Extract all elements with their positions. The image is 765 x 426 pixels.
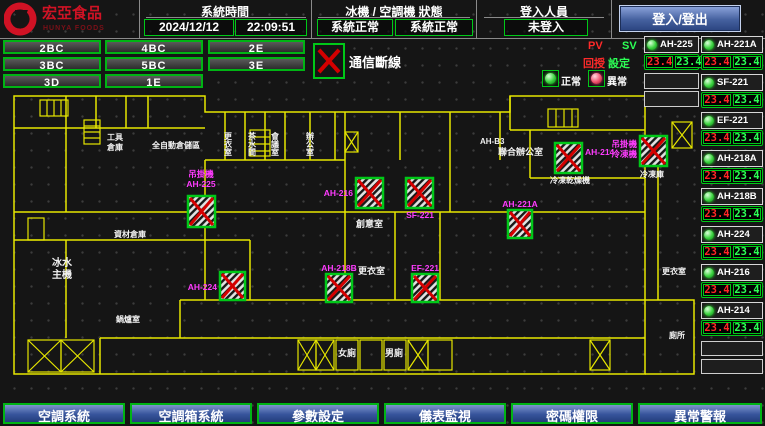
svg-text:女廁: 女廁	[338, 347, 356, 358]
device-ah-218b[interactable]: AH-218B	[321, 263, 356, 302]
unit-tile-ah-216[interactable]: AH-216	[701, 264, 763, 281]
svg-text:冷凍庫: 冷凍庫	[640, 169, 664, 179]
logo-subtitle: HUNYA FOODS	[43, 25, 105, 32]
device-ah-224[interactable]: AH-224	[188, 272, 245, 300]
svg-text:冷凍乾燥機: 冷凍乾燥機	[550, 175, 590, 185]
pv-value: 23.4	[646, 56, 673, 68]
logo: 宏亞食品 HUNYA FOODS	[4, 2, 138, 37]
comm-loss-label: 通信斷線	[349, 52, 401, 71]
nav-button-ahu-system[interactable]: 空調箱系統	[130, 403, 252, 424]
logo-title: 宏亞食品	[42, 4, 102, 22]
unit-status-led	[704, 154, 714, 164]
pv-value: 23.4	[703, 170, 731, 182]
unit-status-led	[704, 116, 714, 126]
svg-text:AH-221A: AH-221A	[502, 199, 537, 209]
system-clock-value: 22:09:51	[235, 19, 307, 36]
svg-text:吊掛機: 吊掛機	[611, 139, 637, 149]
unit-status-led	[704, 192, 714, 202]
unit-values-ef-221: 23.4 23.4	[701, 130, 763, 146]
svg-text:AH-B3: AH-B3	[480, 137, 505, 146]
device-ef-221[interactable]: EF-221	[411, 263, 439, 302]
unit-name: AH-224	[717, 229, 750, 240]
chiller-status-box: 系統正常	[317, 19, 393, 36]
floor-button-4bc[interactable]: 4BC	[105, 40, 203, 54]
unit-status-led	[647, 40, 657, 50]
pv-value: 23.4	[703, 94, 731, 106]
floor-button-2e[interactable]: 2E	[208, 40, 305, 54]
unit-name: AH-225	[660, 39, 693, 50]
pv-value: 23.4	[703, 284, 731, 296]
device-ah-225[interactable]: 吊掛機 AH-225	[186, 169, 216, 227]
system-date-value: 2024/12/12	[144, 19, 234, 36]
unit-tile-ah-224[interactable]: AH-224	[701, 226, 763, 243]
unit-values-ah-218b: 23.4 23.4	[701, 206, 763, 222]
empty-slot	[644, 73, 699, 89]
unit-values-ah-216: 23.4 23.4	[701, 282, 763, 298]
sv-value: 23.4	[733, 56, 761, 68]
nav-button-parameters[interactable]: 參數設定	[257, 403, 379, 424]
abnormal-led-icon	[588, 70, 605, 87]
login-logout-button[interactable]: 登入/登出	[619, 5, 741, 32]
vent-x-boxes	[28, 122, 692, 372]
unit-status-led	[704, 306, 714, 316]
header-rule	[146, 17, 306, 18]
svg-text:茶水間: 茶水間	[247, 131, 257, 157]
unit-values-ah-221a: 23.4 23.4	[701, 54, 763, 70]
unit-tile-ah-218b[interactable]: AH-218B	[701, 188, 763, 205]
svg-text:SF-221: SF-221	[406, 210, 434, 220]
unit-tile-ef-221[interactable]: EF-221	[701, 112, 763, 129]
room-labels: AH-B3 聯合辦公室 創意室 更衣室 女廁 男廁 冰水 主機 資材倉庫 鍋爐室…	[52, 131, 686, 358]
unit-tile-ah-225[interactable]: AH-225	[644, 36, 699, 53]
floor-button-2bc[interactable]: 2BC	[3, 40, 101, 54]
unit-status-led	[704, 268, 714, 278]
svg-text:辦公室: 辦公室	[306, 131, 315, 157]
nav-button-ac-system[interactable]: 空調系統	[3, 403, 125, 424]
sv-value: 23.4	[733, 246, 761, 258]
svg-text:AH-218B: AH-218B	[321, 263, 356, 273]
unit-status-led	[704, 40, 714, 50]
pv-label: PV	[588, 40, 603, 52]
pv-value: 23.4	[703, 246, 731, 258]
svg-text:更衣室: 更衣室	[662, 266, 686, 276]
hmi-screen: 宏亞食品 HUNYA FOODS 系統時間 2024/12/12 22:09:5…	[0, 0, 765, 426]
sv-value: 23.4	[733, 322, 761, 334]
sv-value: 23.4	[675, 56, 702, 68]
svg-text:廁所: 廁所	[669, 330, 685, 340]
floor-button-1e[interactable]: 1E	[105, 74, 203, 88]
floor-button-3d[interactable]: 3D	[3, 74, 101, 88]
unit-values-sf-221: 23.4 23.4	[701, 92, 763, 108]
unit-tile-ah-221a[interactable]: AH-221A	[701, 36, 763, 53]
unit-values-ah-224: 23.4 23.4	[701, 244, 763, 260]
setpoint-label: 設定	[608, 55, 630, 71]
svg-text:EF-221: EF-221	[411, 263, 439, 273]
pv-value: 23.4	[703, 132, 731, 144]
pv-value: 23.4	[703, 56, 731, 68]
svg-text:主機: 主機	[52, 268, 72, 281]
svg-text:男廁: 男廁	[385, 347, 403, 358]
empty-slot	[701, 359, 763, 374]
svg-text:冰水: 冰水	[52, 256, 73, 269]
floor-button-5bc[interactable]: 5BC	[105, 57, 203, 71]
unit-name: AH-218B	[717, 191, 757, 202]
sv-label: SV	[622, 40, 637, 52]
device-hoist[interactable]: 吊掛機 冷凍機 冷凍庫	[611, 136, 667, 179]
svg-text:更衣室: 更衣室	[358, 265, 385, 276]
login-status-box: 未登入	[504, 19, 588, 36]
normal-led-icon	[542, 70, 559, 87]
header-rule	[318, 17, 470, 18]
unit-name: AH-221A	[717, 39, 757, 50]
svg-text:鍋爐室: 鍋爐室	[116, 314, 140, 324]
svg-text:AH-225: AH-225	[186, 179, 216, 189]
unit-status-led	[704, 78, 714, 88]
unit-name: EF-221	[717, 115, 748, 126]
normal-label: 正常	[561, 73, 581, 88]
svg-text:AH-214: AH-214	[585, 147, 615, 157]
pv-value: 23.4	[703, 322, 731, 334]
nav-button-alarm[interactable]: 異常警報	[638, 403, 762, 424]
empty-slot	[644, 91, 699, 107]
svg-text:AH-216: AH-216	[324, 188, 354, 198]
device-sf-221[interactable]: SF-221	[406, 178, 434, 220]
svg-text:冷凍機: 冷凍機	[611, 149, 637, 159]
unit-tile-ah-214[interactable]: AH-214	[701, 302, 763, 319]
svg-text:吊掛機: 吊掛機	[188, 169, 214, 179]
svg-text:工具: 工具	[107, 133, 123, 142]
logo-mark-icon	[7, 6, 33, 32]
feedback-label: 回授	[583, 55, 605, 71]
floor-button-3e[interactable]: 3E	[208, 57, 305, 71]
unit-values-ah-225: 23.4 23.4	[644, 54, 699, 70]
pv-value: 23.4	[703, 208, 731, 220]
unit-name: SF-221	[717, 77, 748, 88]
svg-text:資材倉庫: 資材倉庫	[114, 229, 146, 239]
svg-text:倉庫: 倉庫	[106, 142, 123, 152]
unit-name: AH-214	[717, 305, 750, 316]
abnormal-label: 異常	[607, 73, 627, 88]
svg-text:會議室: 會議室	[270, 131, 280, 157]
unit-values-ah-214: 23.4 23.4	[701, 320, 763, 336]
unit-tile-sf-221[interactable]: SF-221	[701, 74, 763, 91]
nav-button-meter-monitor[interactable]: 儀表監視	[384, 403, 506, 424]
unit-name: AH-216	[717, 267, 750, 278]
device-ah-216[interactable]: AH-216	[324, 178, 383, 208]
comm-loss-x-icon	[313, 43, 345, 79]
sv-value: 23.4	[733, 170, 761, 182]
svg-text:AH-224: AH-224	[188, 282, 218, 292]
header-divider	[611, 0, 612, 38]
unit-tile-ah-218a[interactable]: AH-218A	[701, 150, 763, 167]
sv-value: 23.4	[733, 208, 761, 220]
unit-values-ah-218a: 23.4 23.4	[701, 168, 763, 184]
sv-value: 23.4	[733, 284, 761, 296]
empty-slot	[701, 341, 763, 356]
unit-name: AH-218A	[717, 153, 757, 164]
nav-button-password-auth[interactable]: 密碼權限	[511, 403, 633, 424]
sv-value: 23.4	[733, 94, 761, 106]
header-rule	[484, 17, 604, 18]
unit-status-led	[704, 230, 714, 240]
svg-text:全自動倉儲區: 全自動倉儲區	[151, 140, 200, 150]
floor-plan: 吊掛機 AH-225 AH-224 AH-216 SF-221 AH-218B …	[0, 90, 765, 402]
floor-button-3bc[interactable]: 3BC	[3, 57, 101, 71]
device-ah-221a[interactable]: AH-221A	[502, 199, 537, 238]
ahu-status-box: 系統正常	[395, 19, 473, 36]
svg-text:創意室: 創意室	[355, 218, 383, 229]
svg-text:聯合辦公室: 聯合辦公室	[498, 146, 543, 157]
svg-text:更衣室: 更衣室	[223, 131, 233, 157]
sv-value: 23.4	[733, 132, 761, 144]
